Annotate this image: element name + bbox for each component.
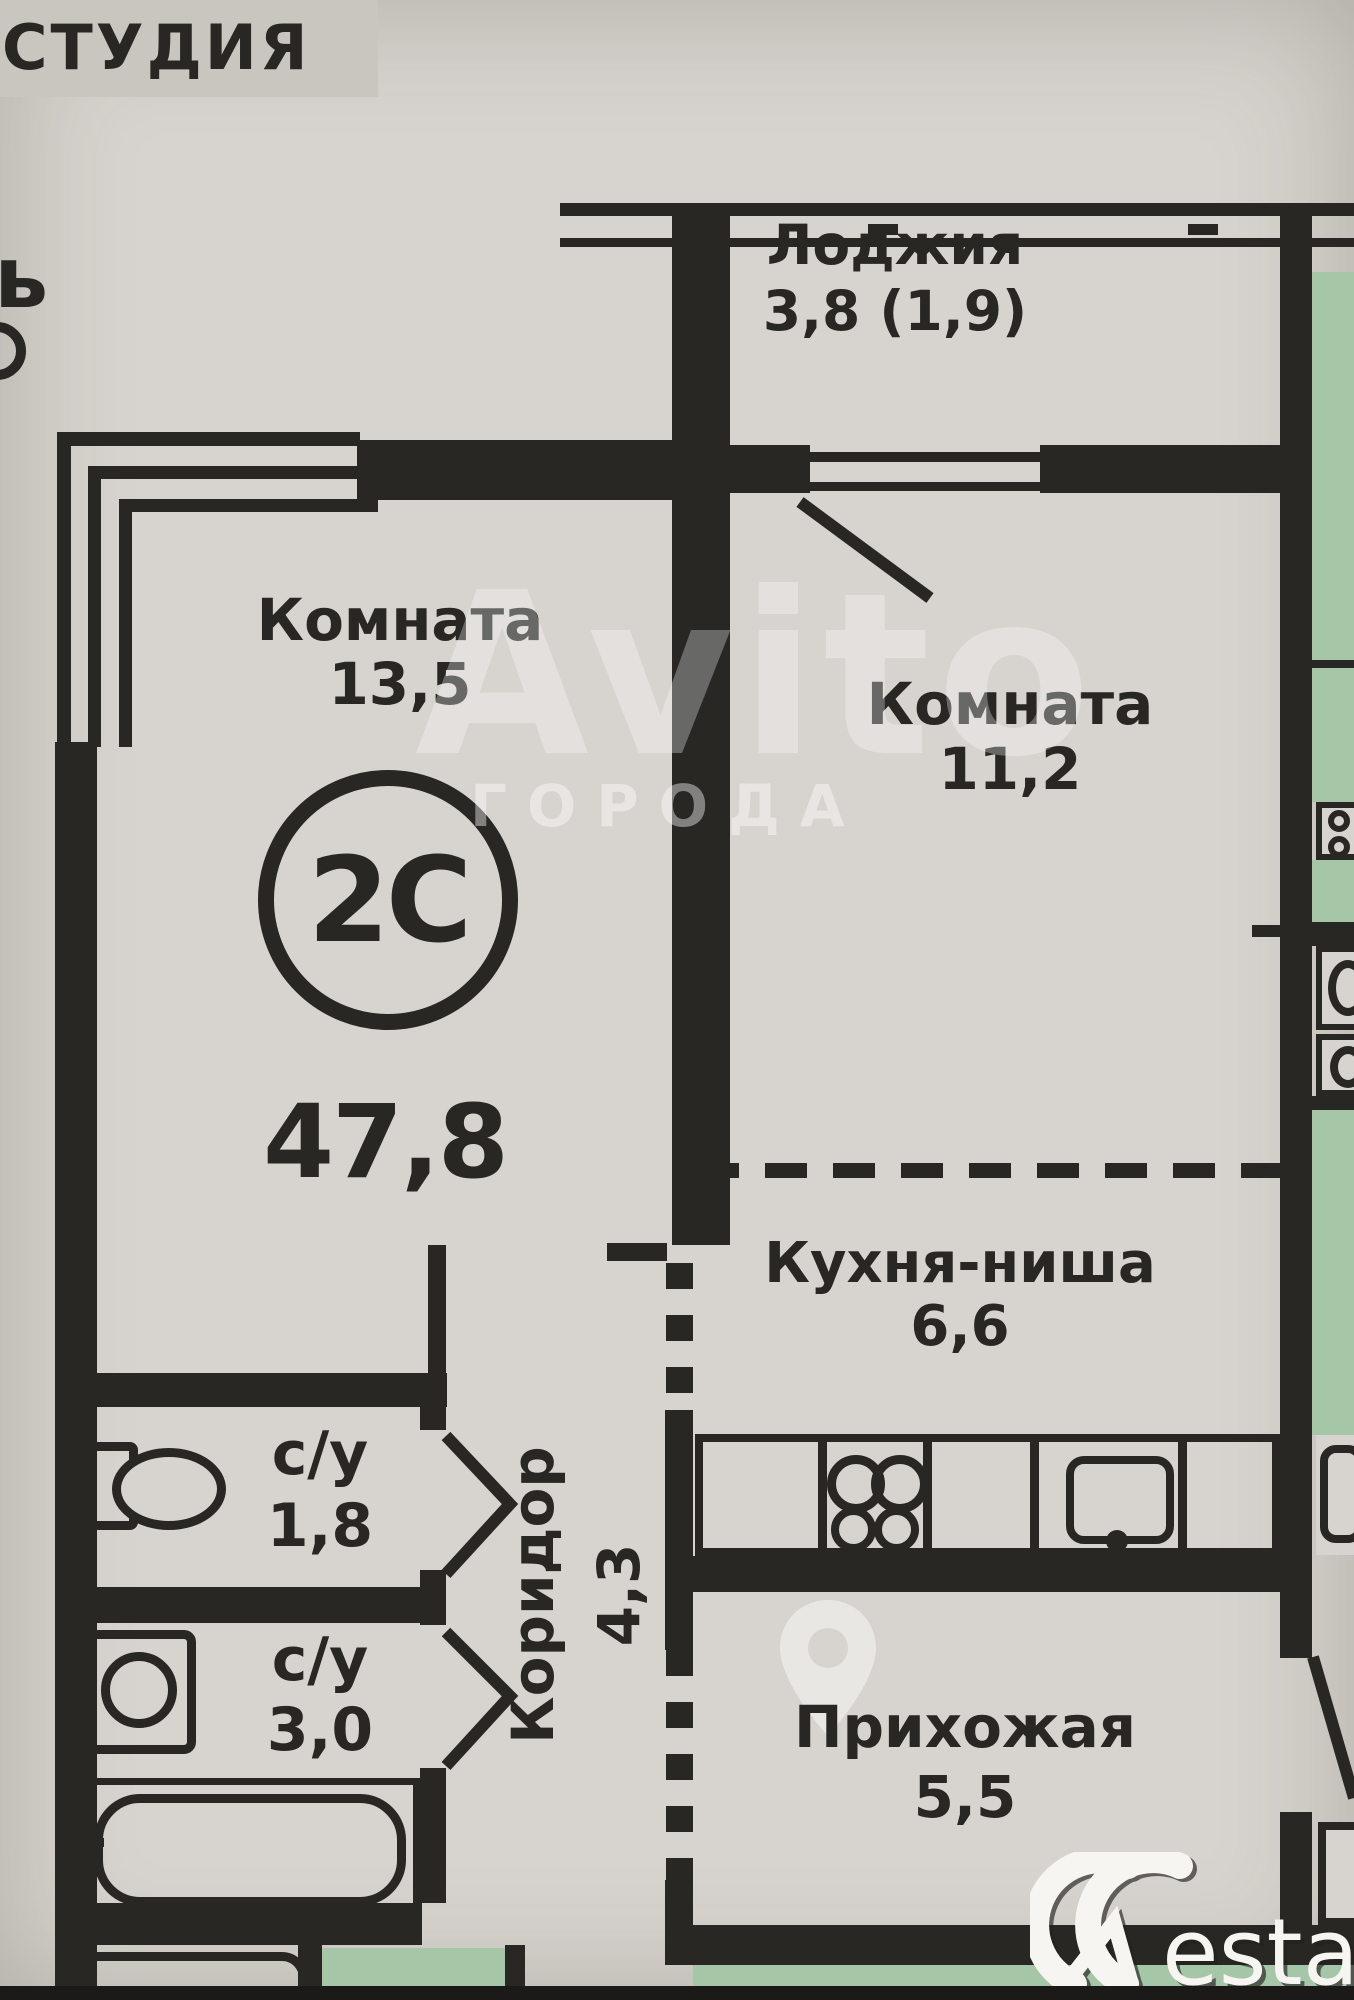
room-area: 3,8 (1,9) <box>700 278 1090 344</box>
room-area: 3,0 <box>235 1695 405 1765</box>
total-area: 47,8 <box>195 1088 575 1198</box>
room-label-bath2: с/у 3,0 <box>235 1625 405 1765</box>
restate-logo-mark <box>1036 1860 1180 1986</box>
room-name: с/у <box>235 1418 405 1490</box>
room-area: 11,2 <box>830 737 1190 802</box>
balcony-door-swing <box>800 502 930 598</box>
room-label-bath1: с/у 1,8 <box>235 1418 405 1562</box>
room-name: Коридор <box>490 1375 576 1815</box>
room-name: Комната <box>215 588 585 652</box>
room-area: 13,5 <box>215 652 585 716</box>
room-area: 4,3 <box>576 1375 662 1815</box>
entrance-door-swing <box>1313 1657 1354 1798</box>
floorplan-photo: Лоджия 3,8 (1,9) Комната 13,5 2С 47,8 Ко… <box>0 0 1354 2000</box>
room-area: 1,8 <box>235 1490 405 1562</box>
cut-text-left: ь <box>0 233 64 323</box>
room-label-kitchen: Кухня-ниша 6,6 <box>740 1232 1180 1358</box>
restate-logo: estate estate <box>1030 1852 1354 2000</box>
room-label-hall: Прихожая 5,5 <box>780 1692 1150 1832</box>
room-name: Комната <box>830 672 1190 737</box>
room-label-corridor: Коридор 4,3 <box>490 1375 670 1815</box>
room-area: 5,5 <box>780 1762 1150 1832</box>
restate-logo-text: estate <box>1162 1899 1354 2000</box>
room-label-room1: Комната 13,5 <box>215 588 585 716</box>
photo-edge <box>0 1986 1354 2000</box>
room-name: Кухня-ниша <box>740 1232 1180 1295</box>
apartment-type-badge: 2С <box>258 770 518 1030</box>
room-name: с/у <box>235 1625 405 1695</box>
room-name: Прихожая <box>780 1692 1150 1762</box>
door-swing-overlay <box>0 0 1354 2000</box>
room-label-room2: Комната 11,2 <box>830 672 1190 802</box>
room-label-loggia: Лоджия 3,8 (1,9) <box>700 212 1090 344</box>
room-name: Лоджия <box>700 212 1090 278</box>
badge-text: 2С <box>274 786 502 1014</box>
studio-banner: СТУДИЯ <box>0 0 378 97</box>
room-area: 6,6 <box>740 1295 1180 1358</box>
studio-label: СТУДИЯ <box>2 0 378 95</box>
